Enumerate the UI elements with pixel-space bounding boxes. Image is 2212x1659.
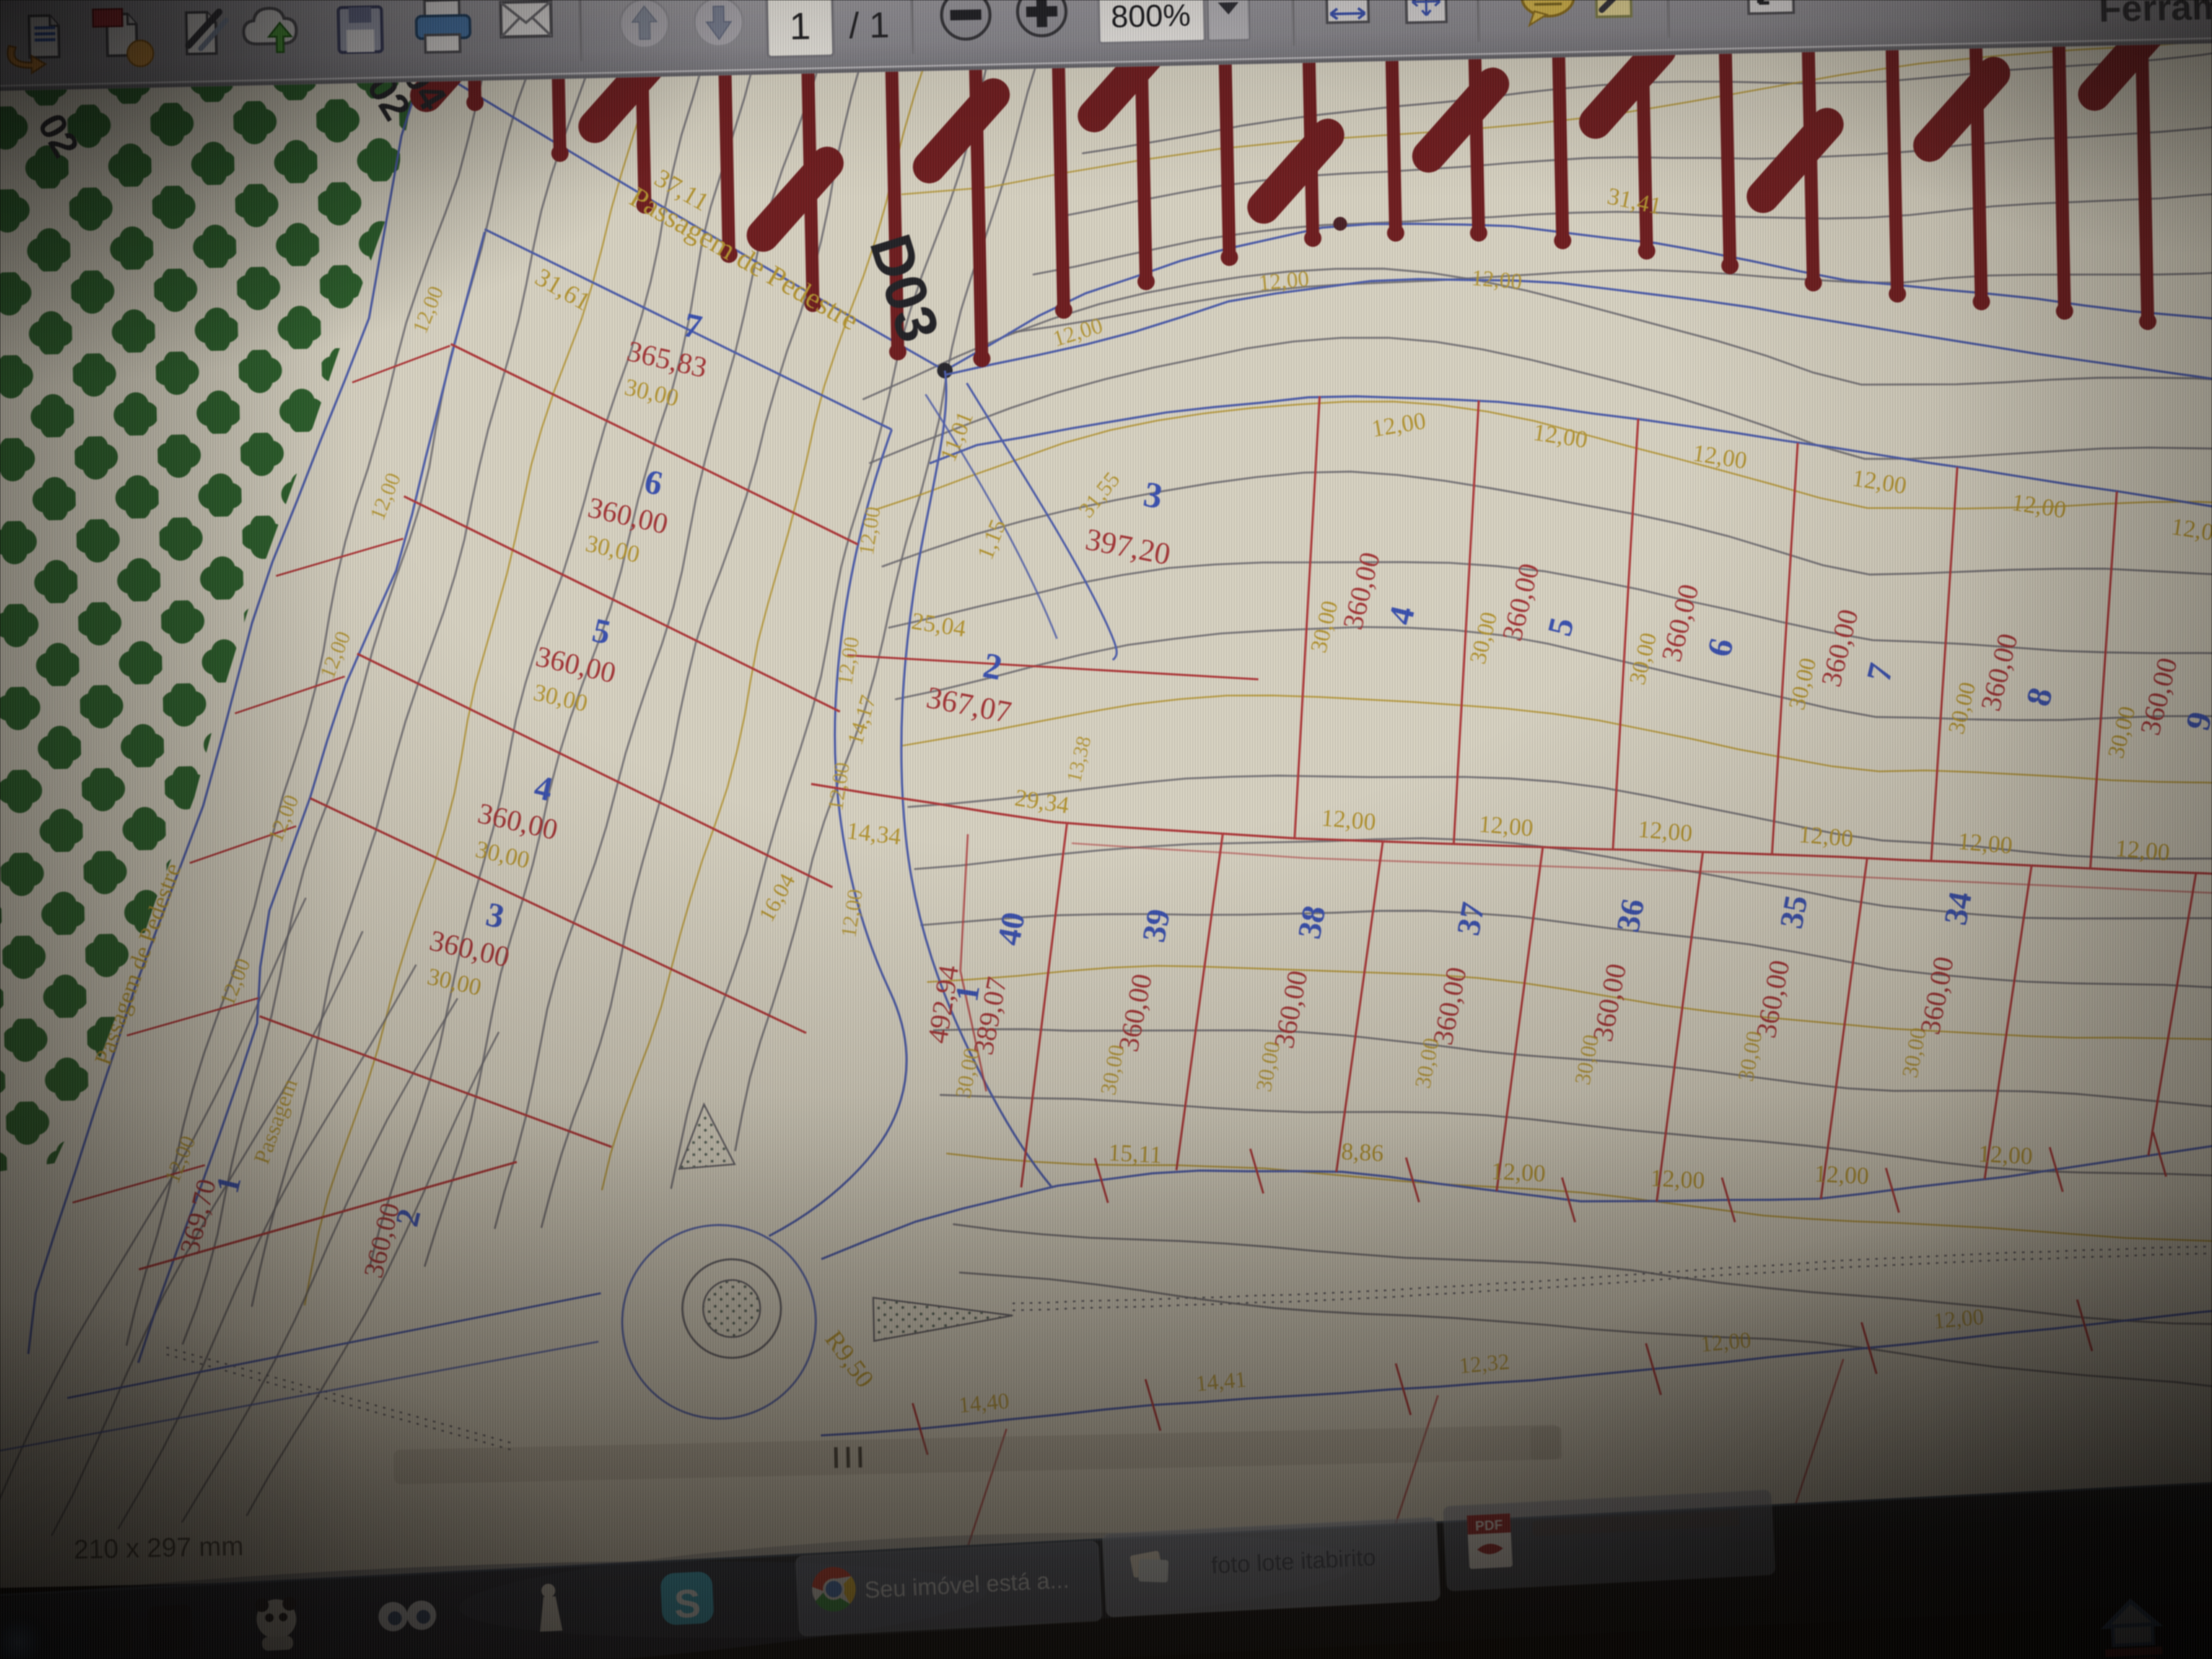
svg-text:15,11: 15,11 xyxy=(1108,1140,1162,1169)
svg-text:35: 35 xyxy=(1773,893,1815,931)
svg-text:12,00: 12,00 xyxy=(1471,265,1523,295)
svg-text:14,40: 14,40 xyxy=(957,1389,1010,1418)
svg-text:12,00: 12,00 xyxy=(1649,1165,1705,1194)
svg-text:/ 1: / 1 xyxy=(849,4,890,46)
svg-text:12,00: 12,00 xyxy=(1957,829,2013,860)
svg-text:1: 1 xyxy=(789,5,811,48)
svg-text:34: 34 xyxy=(1937,889,1979,928)
svg-text:PDF: PDF xyxy=(1475,1518,1503,1535)
svg-text:800%: 800% xyxy=(1110,0,1191,35)
svg-text:S: S xyxy=(673,1580,702,1626)
svg-text:12,00: 12,00 xyxy=(1700,1327,1752,1357)
svg-text:8,86: 8,86 xyxy=(1340,1139,1383,1167)
svg-text:12,00: 12,00 xyxy=(1491,1158,1546,1187)
svg-text:12,00: 12,00 xyxy=(1320,804,1376,836)
svg-text:12,00: 12,00 xyxy=(1478,811,1534,842)
svg-text:36: 36 xyxy=(1610,896,1651,935)
svg-text:Ferram: Ferram xyxy=(2098,0,2212,30)
svg-text:12,00: 12,00 xyxy=(1814,1160,1869,1190)
svg-text:12,32: 12,32 xyxy=(1458,1349,1510,1378)
svg-text:12,00: 12,00 xyxy=(1978,1141,2033,1170)
svg-text:40: 40 xyxy=(991,909,1033,948)
svg-text:210 x 297 mm: 210 x 297 mm xyxy=(73,1531,244,1565)
svg-text:12,00: 12,00 xyxy=(2114,836,2171,867)
svg-text:39: 39 xyxy=(1135,906,1177,945)
svg-text:12,00: 12,00 xyxy=(1257,266,1310,296)
svg-text:12,00: 12,00 xyxy=(1932,1304,1985,1333)
svg-text:12,00: 12,00 xyxy=(1798,822,1854,853)
svg-text:14,41: 14,41 xyxy=(1195,1367,1248,1396)
svg-text:37: 37 xyxy=(1450,899,1491,938)
svg-text:12,00: 12,00 xyxy=(1637,817,1693,848)
svg-text:38: 38 xyxy=(1291,903,1332,942)
